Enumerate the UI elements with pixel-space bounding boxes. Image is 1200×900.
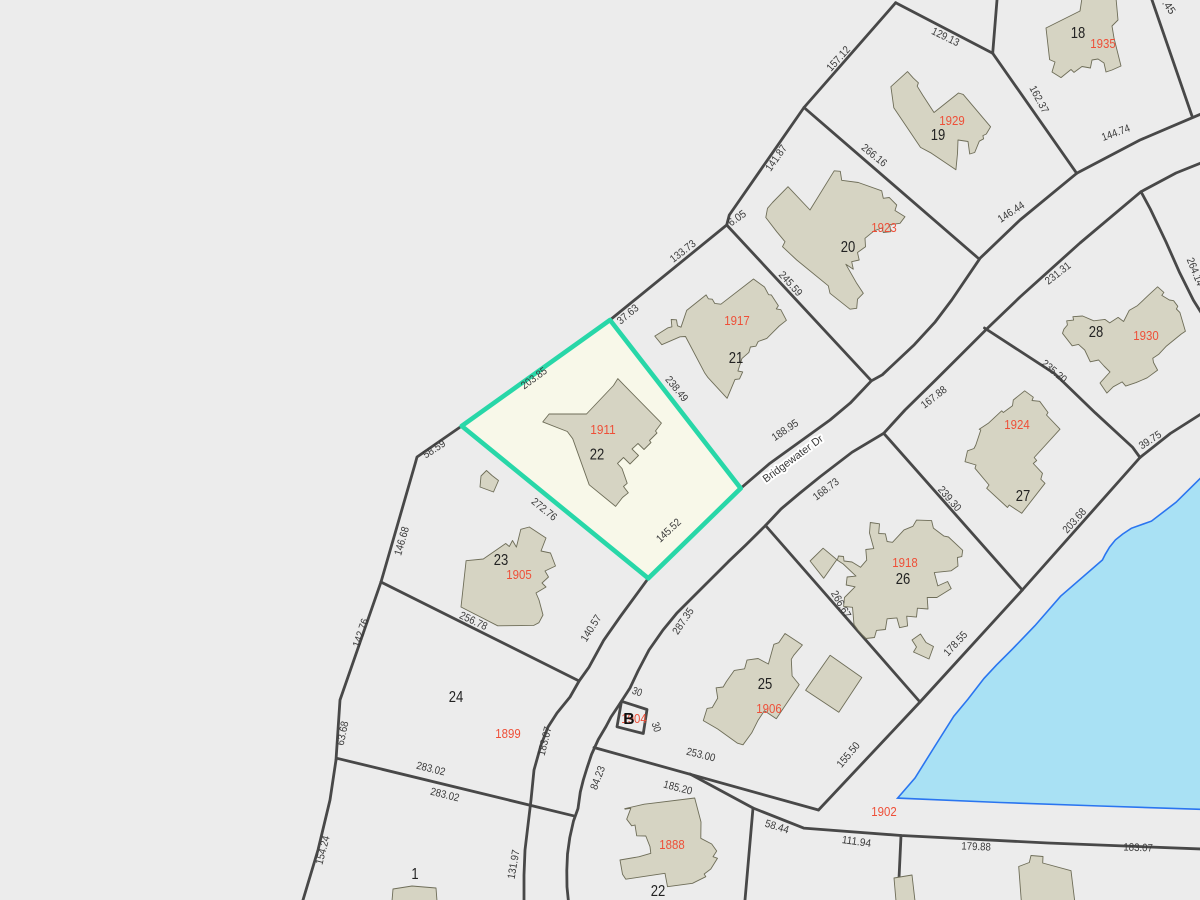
svg-text:1906: 1906 xyxy=(756,701,781,716)
svg-text:183.07: 183.07 xyxy=(1123,841,1153,854)
svg-text:1: 1 xyxy=(411,866,418,883)
svg-text:20: 20 xyxy=(841,239,856,256)
svg-text:28: 28 xyxy=(1089,324,1104,341)
svg-text:1888: 1888 xyxy=(659,837,684,852)
svg-text:25: 25 xyxy=(758,676,773,693)
svg-text:22: 22 xyxy=(651,883,666,900)
svg-text:26: 26 xyxy=(896,571,911,588)
svg-text:1902: 1902 xyxy=(871,804,896,819)
svg-text:B: B xyxy=(623,711,634,728)
svg-text:24: 24 xyxy=(449,689,464,706)
svg-text:1923: 1923 xyxy=(871,220,896,235)
svg-text:21: 21 xyxy=(729,350,744,367)
svg-text:1918: 1918 xyxy=(892,555,917,570)
svg-text:1911: 1911 xyxy=(590,422,615,437)
svg-text:27: 27 xyxy=(1016,488,1031,505)
svg-text:1930: 1930 xyxy=(1133,328,1158,343)
svg-text:1935: 1935 xyxy=(1090,36,1115,51)
svg-text:1929: 1929 xyxy=(939,113,964,128)
svg-text:18: 18 xyxy=(1071,25,1086,42)
svg-text:179.88: 179.88 xyxy=(961,840,991,853)
svg-text:1917: 1917 xyxy=(724,313,749,328)
svg-text:19: 19 xyxy=(931,127,946,144)
svg-text:22: 22 xyxy=(590,447,605,464)
svg-text:1899: 1899 xyxy=(495,726,520,741)
svg-text:1924: 1924 xyxy=(1004,417,1029,432)
svg-text:1905: 1905 xyxy=(506,567,531,582)
